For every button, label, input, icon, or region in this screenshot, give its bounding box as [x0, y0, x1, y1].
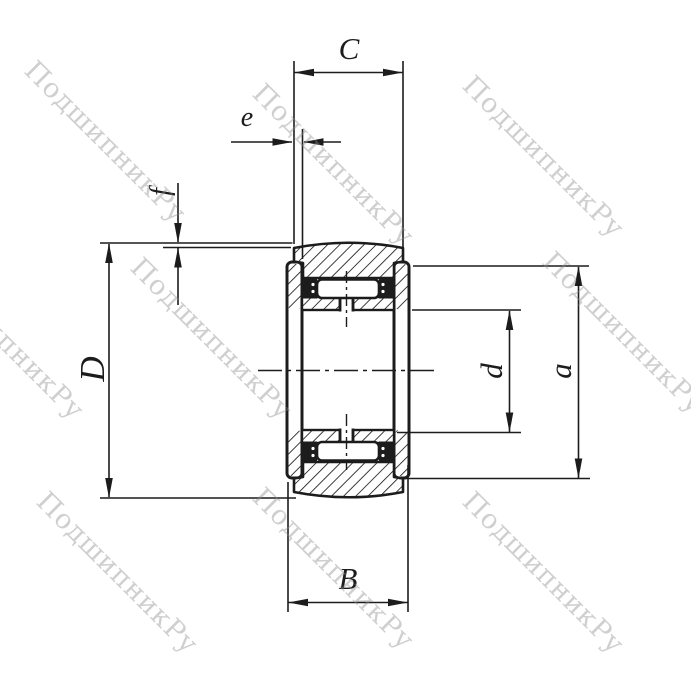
bearing-drawing-canvas: C e f D d a B ПодшипникРу ПодшипникРу По…: [0, 0, 691, 686]
dim-label-f: f: [141, 172, 181, 212]
dimension-lines: [109, 73, 579, 603]
dim-label-B: B: [330, 563, 366, 594]
dim-label-e: e: [232, 104, 262, 132]
dimension-arrowheads: [105, 69, 582, 607]
dim-label-a: a: [537, 348, 583, 394]
outer-ring-top-section: [294, 243, 403, 278]
extension-lines: [100, 61, 590, 612]
dim-label-D: D: [67, 344, 117, 394]
outer-ring-bottom-section: [294, 462, 403, 497]
dim-label-d: d: [468, 348, 514, 394]
dim-label-C: C: [331, 33, 367, 64]
